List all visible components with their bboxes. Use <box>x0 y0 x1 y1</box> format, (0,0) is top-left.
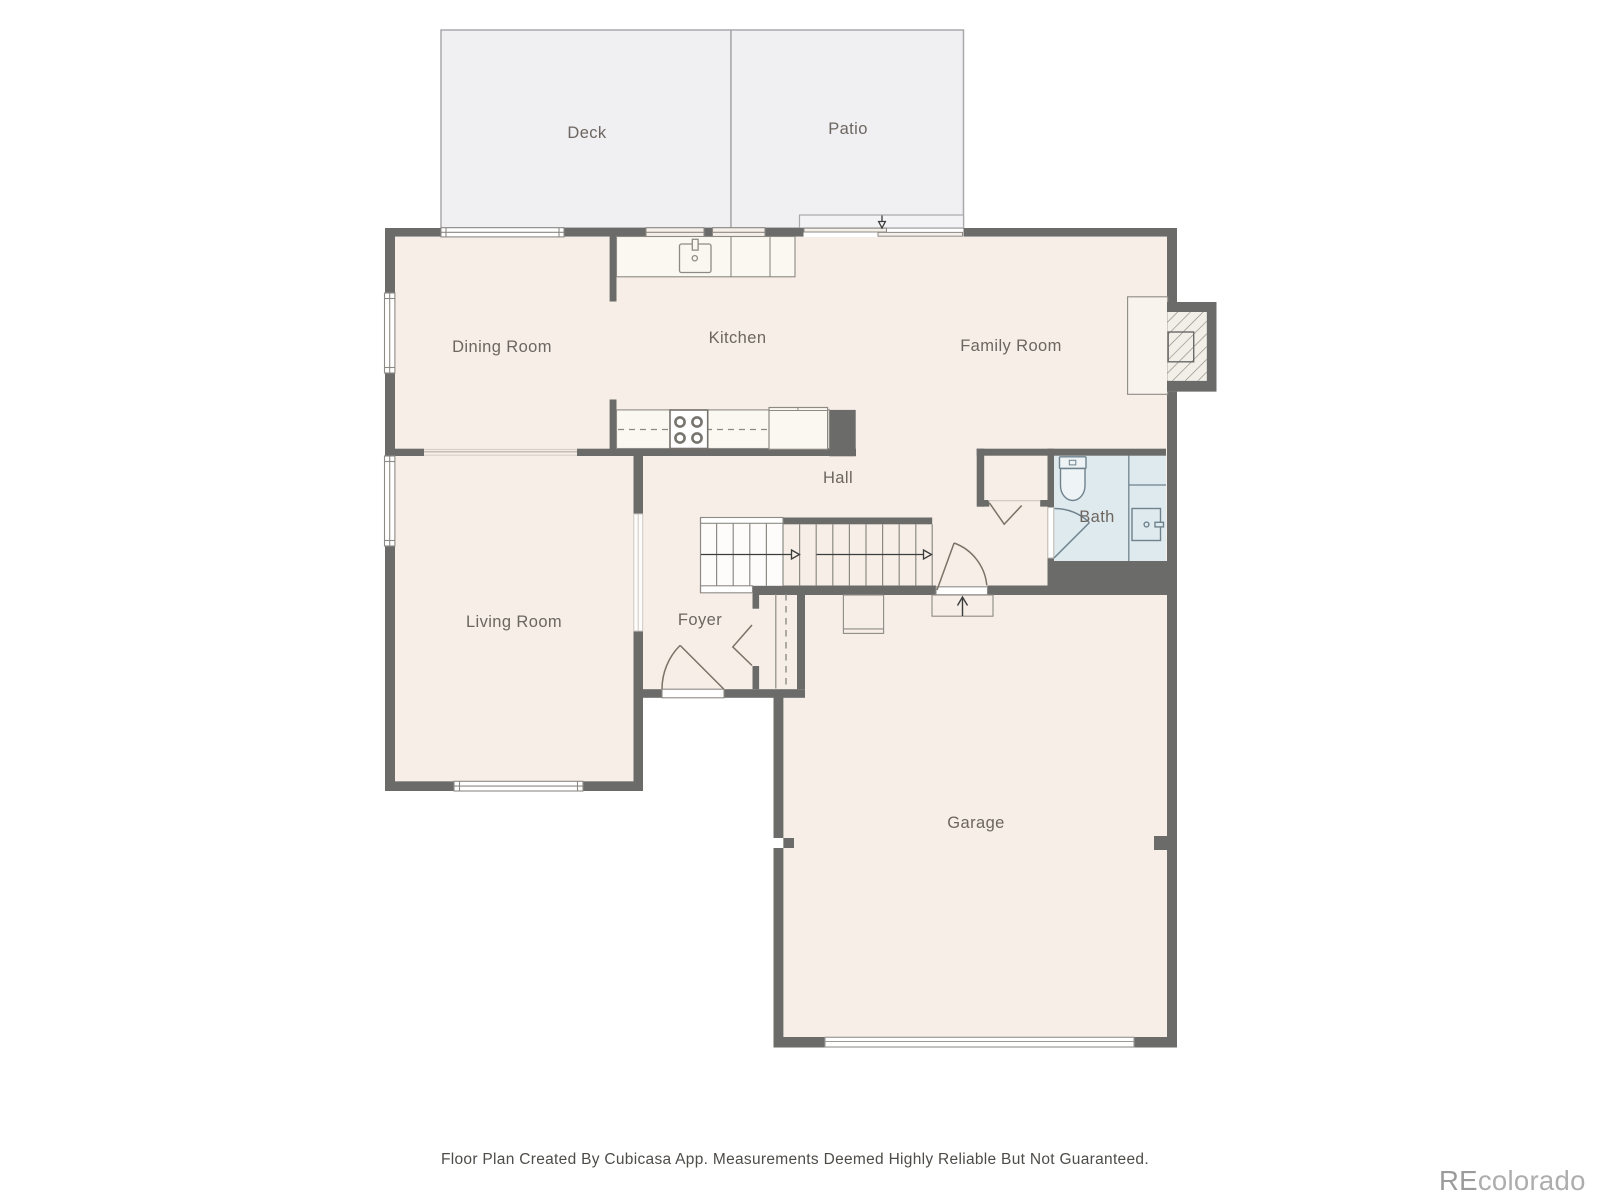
svg-text:REcolorado: REcolorado <box>1439 1165 1586 1196</box>
svg-text:Kitchen: Kitchen <box>709 329 767 347</box>
svg-text:Floor Plan Created By Cubicasa: Floor Plan Created By Cubicasa App. Meas… <box>441 1151 1149 1168</box>
svg-text:Living Room: Living Room <box>466 613 562 631</box>
svg-text:Family Room: Family Room <box>960 337 1062 355</box>
svg-text:Deck: Deck <box>567 124 607 142</box>
svg-text:Hall: Hall <box>823 469 853 487</box>
svg-text:Patio: Patio <box>828 120 868 138</box>
svg-text:Foyer: Foyer <box>678 611 722 629</box>
svg-text:Dining Room: Dining Room <box>452 338 552 356</box>
svg-text:Bath: Bath <box>1079 508 1115 526</box>
svg-text:Garage: Garage <box>947 814 1004 832</box>
